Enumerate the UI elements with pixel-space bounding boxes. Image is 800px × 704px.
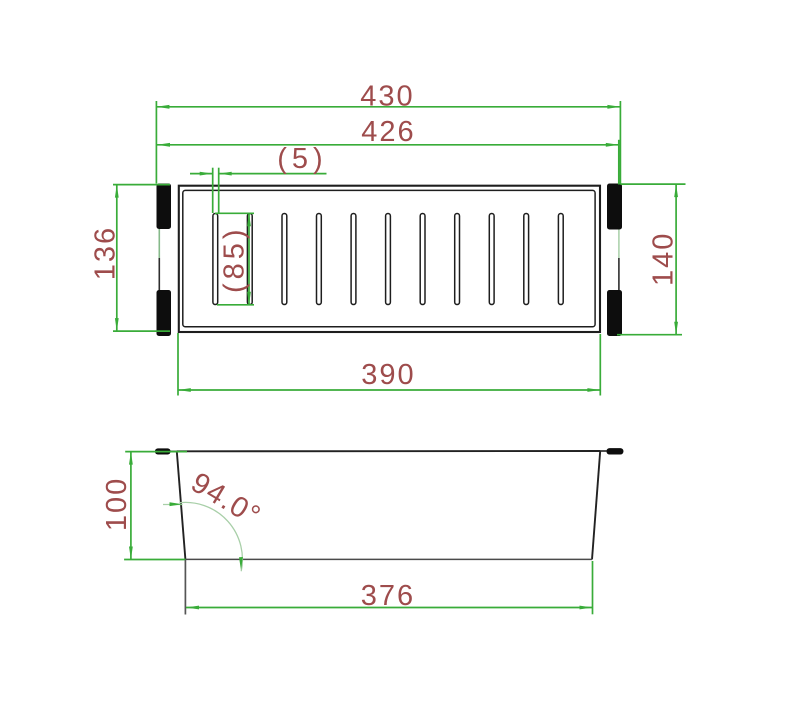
svg-text:94.0°: 94.0°: [185, 467, 266, 533]
svg-text:100: 100: [101, 477, 133, 531]
svg-text:140: 140: [647, 232, 679, 286]
svg-text:136: 136: [90, 226, 122, 280]
svg-text:(85): (85): [219, 225, 251, 293]
svg-text:(5): (5): [277, 143, 327, 175]
svg-text:426: 426: [361, 116, 415, 148]
svg-text:430: 430: [360, 81, 414, 113]
svg-text:390: 390: [361, 359, 415, 391]
svg-text:376: 376: [361, 580, 415, 612]
